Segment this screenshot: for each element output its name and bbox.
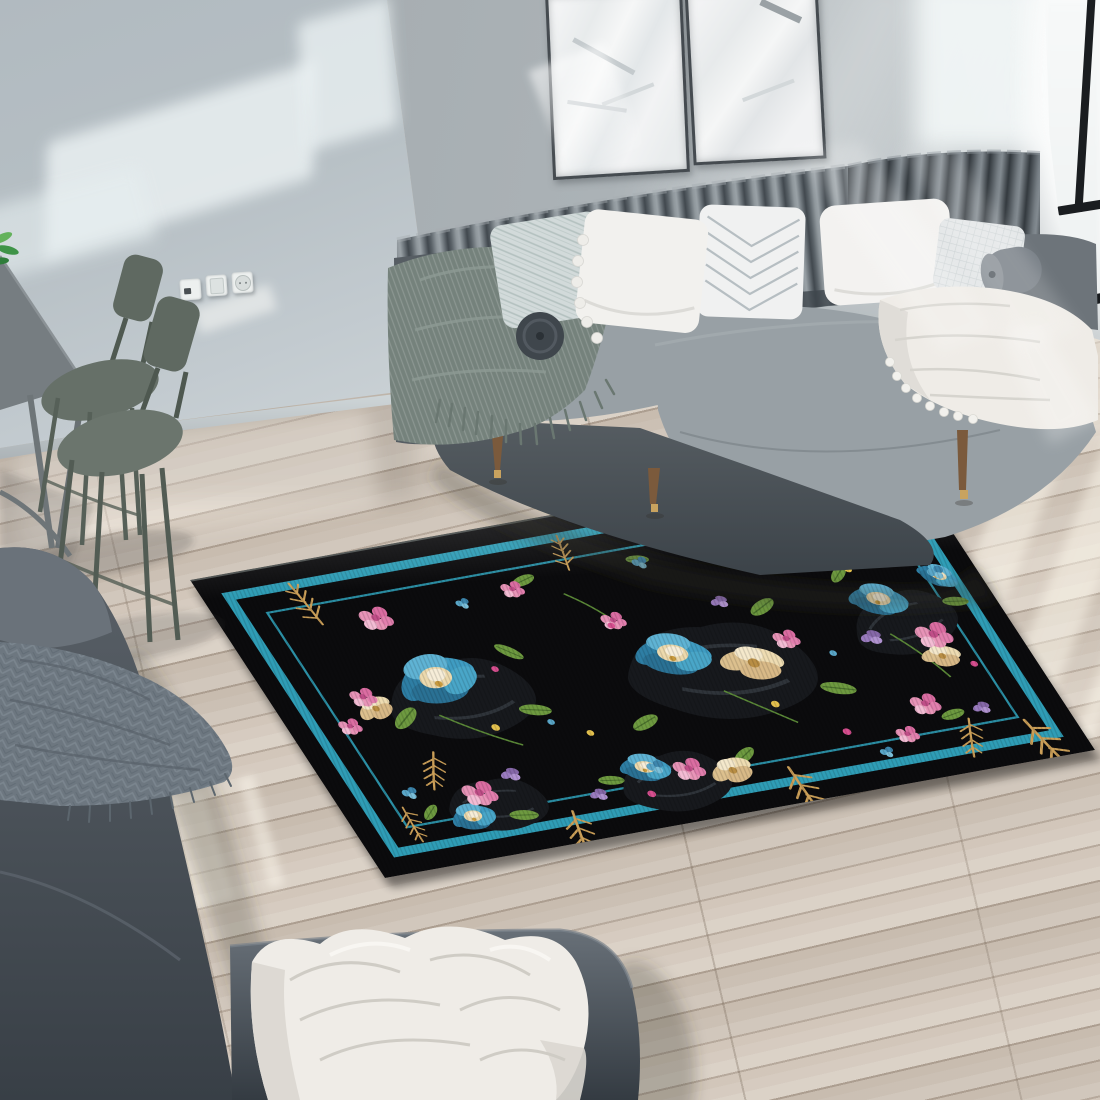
- switch-rocker: [209, 277, 224, 294]
- art-brushstroke: [759, 0, 802, 24]
- socket-round: [234, 274, 251, 291]
- power-outlet: [231, 271, 253, 293]
- wall-art-right: [684, 0, 826, 165]
- living-room-scene: [0, 0, 1100, 1100]
- light-switch: [205, 274, 227, 296]
- wall-sun-patch: [297, 0, 397, 151]
- art-brushstroke: [742, 79, 795, 102]
- socket-hole: [239, 282, 241, 284]
- data-jack-port: [184, 288, 191, 294]
- wall-plate-data-jack: [179, 278, 201, 300]
- socket-hole: [245, 282, 247, 284]
- wall-art-left: [545, 0, 690, 180]
